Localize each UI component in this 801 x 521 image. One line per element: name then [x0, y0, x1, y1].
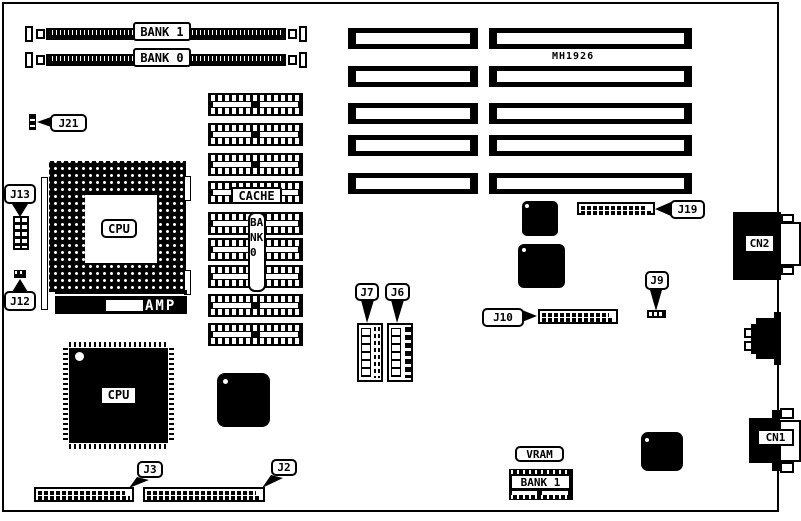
qfp-chip [518, 244, 565, 288]
isa-slot [348, 173, 478, 194]
dip-chip [208, 123, 303, 146]
j2-callout: J2 [271, 459, 297, 476]
j12-jumper [14, 270, 26, 278]
cn2-dsub-port [779, 222, 801, 266]
vram-bank1-label: BANK 1 [510, 474, 571, 490]
slot-latch [288, 29, 297, 39]
j10-header [538, 309, 618, 324]
slot-latch [288, 55, 297, 65]
j10-callout: J10 [482, 308, 524, 327]
connector-pin [744, 341, 753, 351]
simm-slot-bank1: BANK 1 [25, 26, 307, 42]
bank1-label: BANK 1 [133, 22, 191, 41]
j7-jumper-block [357, 323, 383, 382]
vram-bank1-module: BANK 1 [509, 469, 573, 500]
isa-slot [489, 135, 692, 156]
amp-regulator: AMP [55, 296, 187, 314]
bank0-column-label: BANK 0 [248, 212, 266, 292]
j9-callout: J9 [645, 271, 669, 290]
qfp-chip [217, 373, 270, 427]
slot-end-cap [299, 26, 307, 42]
j19-header [577, 202, 655, 215]
cache-label: CACHE [231, 187, 282, 204]
isa-slot [489, 173, 692, 194]
j2-header [143, 487, 265, 502]
cn2-label: CN2 [746, 236, 773, 251]
isa-slot [348, 28, 478, 49]
qfp-chip [641, 432, 683, 471]
j19-callout: J19 [670, 200, 705, 219]
edge-connector [756, 318, 781, 359]
j7-callout: J7 [355, 283, 379, 301]
socket-side-bar [41, 177, 48, 310]
motherboard-diagram: BANK 1 BANK 0 J21 CPU J13 J12 AMP CACH [0, 0, 801, 521]
dip-chip [208, 93, 303, 116]
bank0-label: BANK 0 [133, 48, 191, 67]
j9-jumper [647, 310, 666, 318]
simm-slot-bank0: BANK 0 [25, 52, 307, 68]
isa-slot [348, 66, 478, 87]
j13-callout: J13 [4, 184, 36, 204]
isa-slot [489, 66, 692, 87]
cpu-socket-label: CPU [101, 219, 137, 238]
amp-bar-edge [55, 290, 187, 294]
isa-slot [489, 28, 692, 49]
qfp-chip [522, 201, 558, 236]
cn2-mount-tab [781, 214, 794, 223]
isa-slot [348, 135, 478, 156]
slot-end-cap [25, 26, 33, 42]
j6-jumper-block [387, 323, 413, 382]
j21-jumper [29, 114, 36, 130]
cpu-qfp-chip: CPU [63, 342, 174, 449]
slot-end-cap [299, 52, 307, 68]
slot-latch [36, 55, 45, 65]
cn1-label: CN1 [757, 429, 794, 446]
slot-latch [36, 29, 45, 39]
dip-chip [208, 323, 303, 346]
dip-chip [208, 153, 303, 176]
chipset-part-number: MH1926 [552, 51, 594, 62]
cn2-mount-tab [781, 266, 794, 275]
cn1-mount-tab [780, 408, 794, 419]
j13-jumper [13, 216, 29, 250]
socket-nub [184, 176, 191, 201]
amp-label: AMP [145, 298, 176, 314]
connector-pin [744, 328, 753, 338]
j12-callout: J12 [4, 291, 36, 311]
slot-end-cap [25, 52, 33, 68]
j21-callout: J21 [50, 114, 87, 132]
isa-slot [348, 103, 478, 124]
cn2-connector: CN2 [733, 212, 781, 280]
j6-callout: J6 [385, 283, 410, 301]
j3-callout: J3 [137, 461, 163, 478]
dip-chip [208, 294, 303, 317]
isa-slot [489, 103, 692, 124]
vram-label: VRAM [515, 446, 564, 462]
cpu-qfp-label: CPU [102, 388, 135, 403]
j3-header [34, 487, 134, 502]
cn1-mount-tab [780, 462, 794, 473]
